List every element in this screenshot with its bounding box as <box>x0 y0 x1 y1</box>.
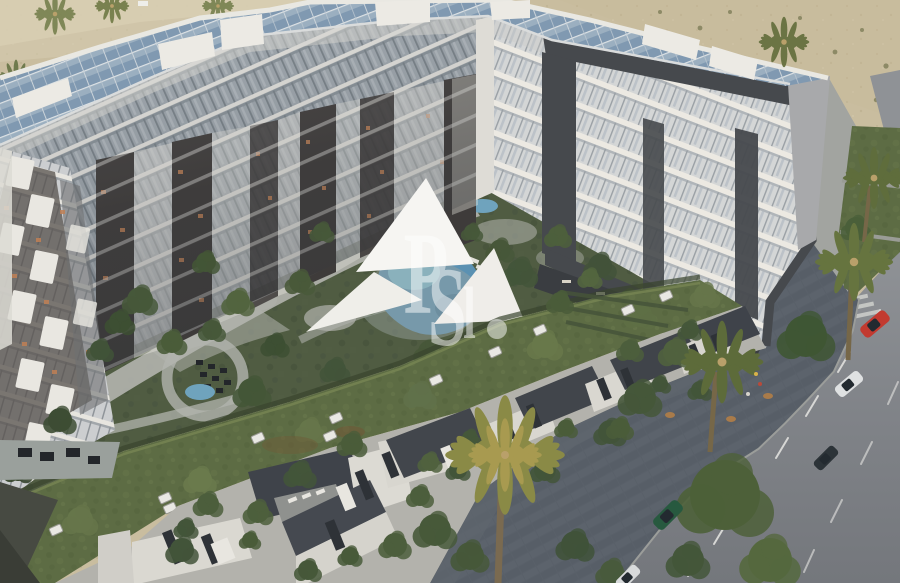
svg-text:S: S <box>428 245 467 370</box>
svg-text:l: l <box>463 273 476 355</box>
